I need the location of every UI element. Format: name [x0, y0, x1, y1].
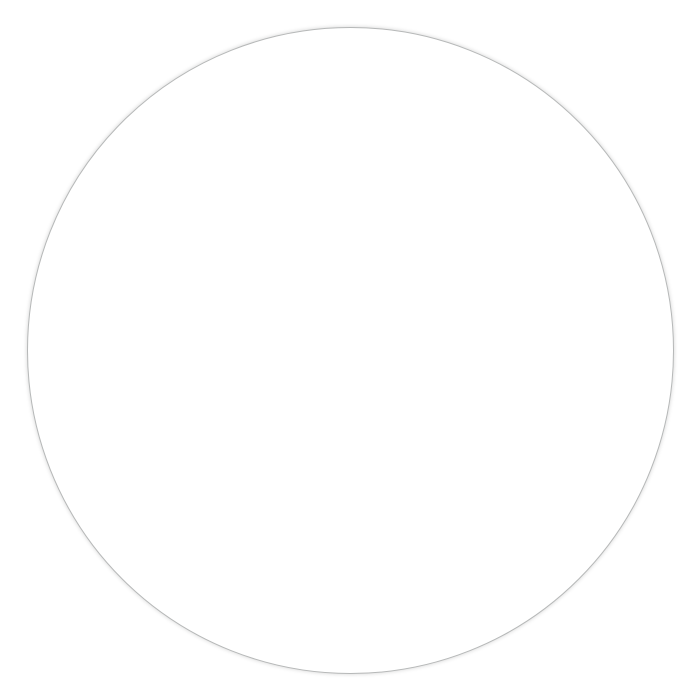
calendar-page — [27, 27, 674, 674]
calendar-circle-crop — [27, 27, 674, 674]
